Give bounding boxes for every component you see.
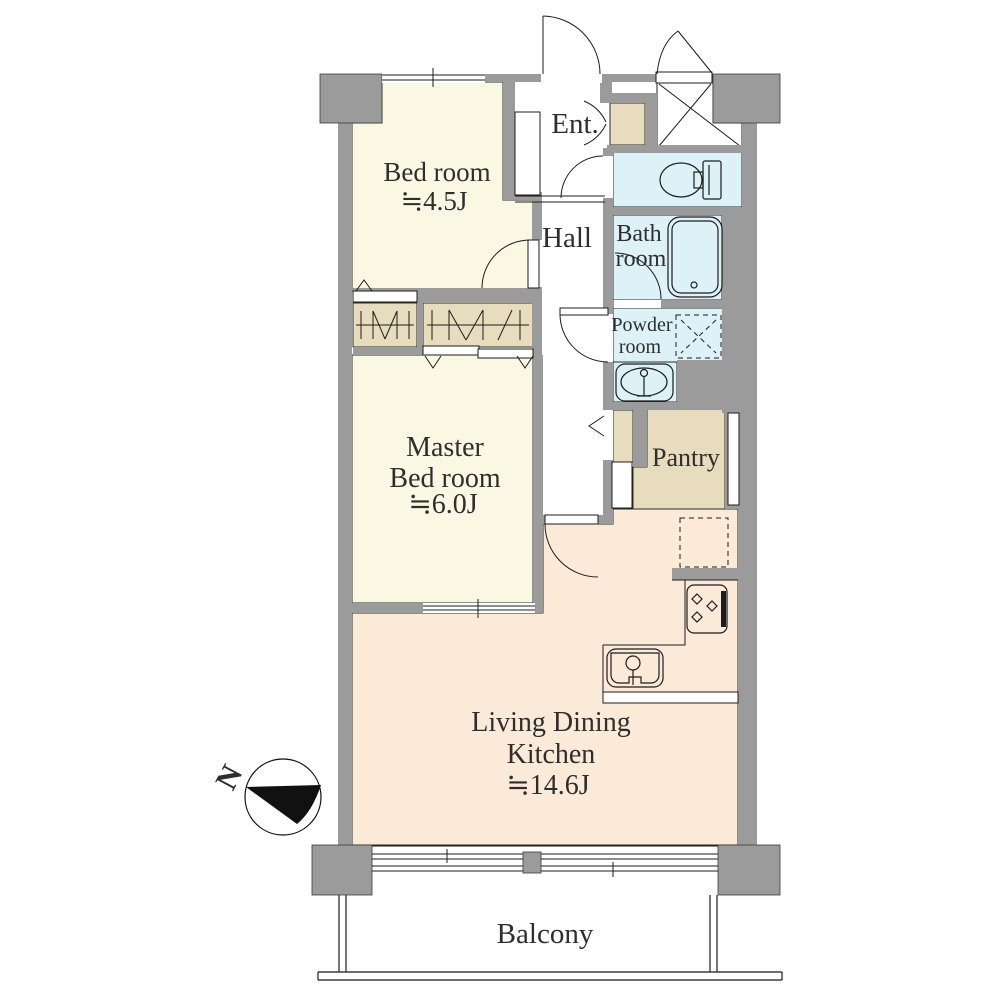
pantry-label: Pantry [652,443,720,472]
bathroom-label-line2: room [616,246,667,272]
bathroom-label-line1: Bath [616,221,661,247]
entrance-label: Ent. [551,108,599,140]
powder-room-label-line2: room [619,336,662,358]
floor-plan-page: N Bed room ≒4.5J Ent. Hall Bath room Pow… [0,0,1000,1000]
storage-door [656,31,712,83]
compass-north-label: N [208,759,249,795]
room-toilet [613,152,742,207]
compass-icon: N [208,759,321,835]
floor-plan: N Bed room ≒4.5J Ent. Hall Bath room Pow… [0,0,1000,1000]
front-door [541,16,602,83]
ldk-label-line1: Living Dining [471,707,630,738]
toilet-door [561,156,613,198]
powder-room-label-line1: Powder [611,314,672,336]
master-bedroom-size-label: ≒6.0J [408,489,477,520]
pipe-space [728,413,739,505]
shoe-cabinet [515,112,540,195]
powder-door [560,308,613,362]
entrance-tile [610,103,645,145]
bedroom-size-label: ≒4.5J [401,186,468,216]
bedroom-label: Bed room [383,157,490,187]
balcony-label: Balcony [497,918,594,950]
ldk-size-label: ≒14.6J [506,770,589,801]
balcony [318,846,782,980]
ldk-label-line2: Kitchen [507,739,596,770]
master-bedroom-label-line1: Master [406,432,484,463]
hall-label: Hall [542,222,592,254]
